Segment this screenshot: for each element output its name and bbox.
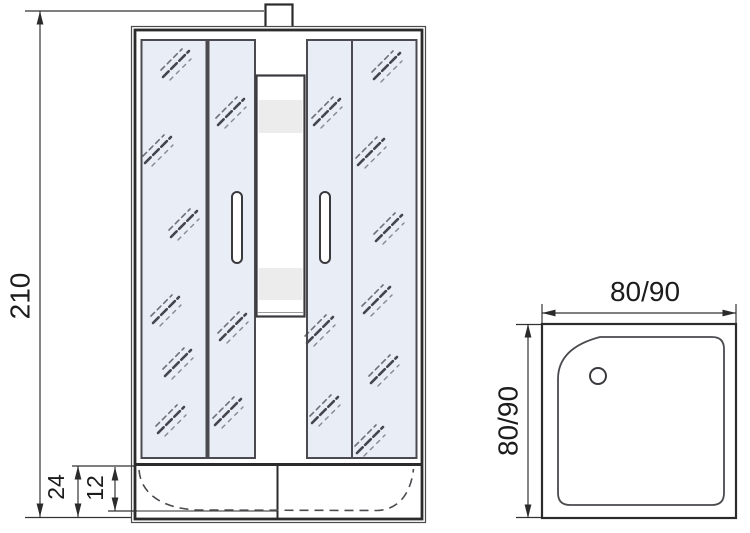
roof-cap (266, 5, 293, 28)
glass-door-left (142, 40, 256, 458)
door-handle-right (320, 192, 330, 263)
center-panel-band-top (259, 100, 303, 133)
tray-height-dimension-label: 24 (43, 474, 69, 500)
center-panel-band-bottom (259, 268, 303, 300)
glass-panel-right-outer (352, 40, 417, 458)
tray-plan-view: 80/90 80/90 (492, 276, 736, 518)
tray-inner-rim (558, 337, 724, 505)
tray-depth-dimension-label: 80/90 (492, 386, 523, 456)
technical-drawing: 210 (0, 0, 750, 533)
height-dimension-label: 210 (4, 273, 35, 320)
drain-icon (590, 368, 606, 384)
front-elevation-view: 210 (4, 5, 425, 523)
glass-door-right (305, 40, 417, 458)
tray-rim-dimension-label: 12 (82, 475, 108, 501)
center-column-panel (257, 76, 305, 317)
tray-width-dimension-label: 80/90 (610, 276, 680, 307)
drawing-canvas: 210 (0, 0, 750, 533)
tray-width-dimension (542, 304, 736, 324)
door-handle-left (232, 192, 242, 263)
glass-panel-left-outer (142, 40, 207, 458)
